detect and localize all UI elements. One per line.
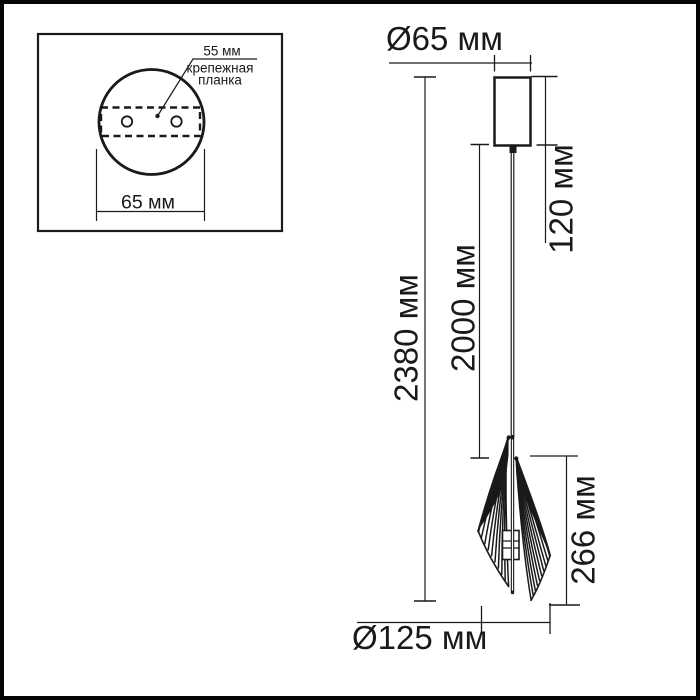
shade-top-tip bbox=[507, 435, 511, 439]
cord-length-label: 2000 мм bbox=[447, 244, 480, 372]
canopy-and-cord bbox=[495, 78, 531, 439]
screw-hole-right bbox=[171, 116, 181, 126]
bracket-name-line2: планка bbox=[187, 74, 254, 86]
shade-diameter-label: Ø125 мм bbox=[352, 621, 487, 654]
bracket-name-label: крепежная планка bbox=[187, 63, 254, 86]
shade-height-label: 266 мм bbox=[567, 475, 600, 585]
shade-second-tip bbox=[514, 456, 518, 460]
bracket-width-label: 55 мм bbox=[203, 44, 240, 58]
screw-hole-left bbox=[122, 116, 132, 126]
canopy-height-label: 120 мм bbox=[545, 144, 578, 254]
overall-height-label: 2380 мм bbox=[390, 274, 423, 402]
lamp-shade bbox=[478, 435, 550, 600]
technical-drawing-canvas: Ø65 мм 120 мм 2380 мм 2000 мм 266 мм Ø12… bbox=[0, 0, 700, 700]
shade-right-pleats bbox=[516, 458, 550, 600]
shade-right-lower-edge bbox=[531, 556, 550, 601]
lamp-socket bbox=[503, 531, 520, 560]
pendant-lamp-line-art bbox=[0, 0, 700, 700]
canopy bbox=[495, 78, 531, 146]
canopy-diameter-label: Ø65 мм bbox=[386, 22, 503, 55]
plate-width-label: 65 мм bbox=[121, 193, 175, 213]
mounting-bracket-dashed bbox=[101, 108, 200, 137]
